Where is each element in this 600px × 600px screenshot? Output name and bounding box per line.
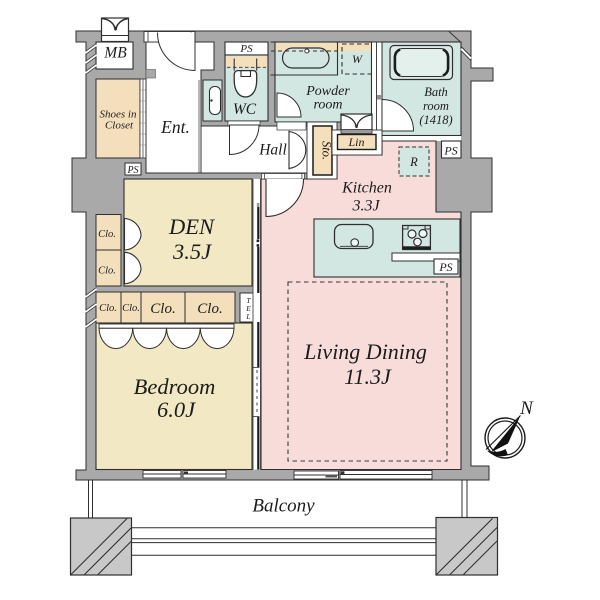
- svg-text:11.3J: 11.3J: [344, 364, 392, 389]
- svg-text:N: N: [519, 398, 534, 419]
- svg-text:PS: PS: [239, 43, 253, 55]
- svg-text:L: L: [245, 312, 250, 321]
- svg-text:Living Dining: Living Dining: [303, 339, 427, 364]
- svg-text:PS: PS: [443, 144, 457, 158]
- svg-text:W: W: [352, 52, 363, 66]
- svg-text:Clo.: Clo.: [150, 301, 175, 317]
- svg-text:Hall: Hall: [258, 142, 287, 159]
- svg-text:MB: MB: [103, 45, 127, 62]
- svg-text:3.3J: 3.3J: [351, 198, 380, 215]
- svg-text:R: R: [409, 155, 418, 169]
- svg-text:DEN: DEN: [168, 214, 216, 239]
- svg-text:PS: PS: [126, 165, 138, 176]
- svg-text:PS: PS: [438, 260, 452, 274]
- svg-text:Clo.: Clo.: [98, 229, 116, 240]
- svg-text:WC: WC: [233, 101, 257, 118]
- svg-text:Sto.: Sto.: [320, 141, 334, 160]
- svg-text:3.5J: 3.5J: [172, 239, 212, 264]
- svg-text:Closet: Closet: [105, 120, 134, 132]
- svg-text:Clo.: Clo.: [197, 301, 222, 317]
- svg-text:6.0J: 6.0J: [157, 397, 196, 422]
- svg-text:Kitchen: Kitchen: [341, 180, 392, 197]
- svg-text:Ent.: Ent.: [160, 117, 190, 137]
- svg-text:room: room: [313, 98, 342, 113]
- svg-text:Bedroom: Bedroom: [134, 374, 216, 399]
- svg-text:Clo.: Clo.: [99, 303, 117, 314]
- svg-text:Balcony: Balcony: [252, 496, 315, 517]
- svg-text:Bath: Bath: [424, 85, 448, 99]
- svg-text:Lin: Lin: [347, 135, 364, 149]
- svg-text:Clo.: Clo.: [122, 303, 140, 314]
- svg-text:Clo.: Clo.: [98, 266, 116, 277]
- svg-text:(1418): (1418): [419, 113, 452, 127]
- svg-text:room: room: [423, 99, 449, 113]
